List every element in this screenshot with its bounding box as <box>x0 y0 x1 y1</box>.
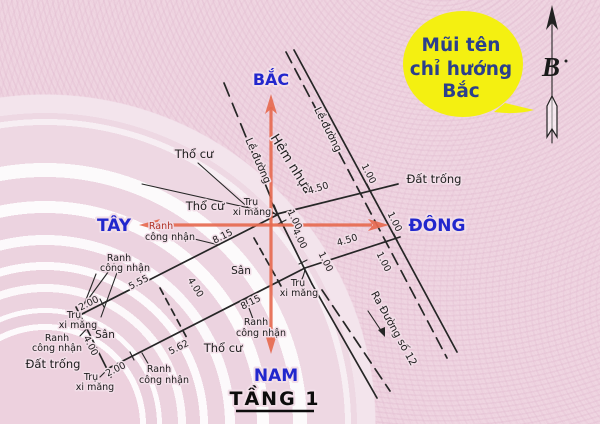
dim-internal-400: 4.00 <box>185 276 206 300</box>
boundary-4-line1: Ranh <box>147 364 171 375</box>
area-label-residential-1: Thổ cư <box>174 147 214 161</box>
area-label-residential-2: Thổ cư <box>185 199 225 213</box>
pillar-west-line2: xi măng <box>59 320 97 331</box>
area-label-yard-2: Sân <box>95 329 115 341</box>
dim-frontage-100-top: 1.00 <box>285 208 304 232</box>
boundary-1-line2: công nhận <box>145 232 195 243</box>
dim-shoulder-100-lower: 1.00 <box>374 250 393 274</box>
north-indicator-letter: B <box>541 52 560 82</box>
pillar-label-ne: Trụ xi măng <box>233 197 271 218</box>
boundary-1-line1: Ranh <box>149 221 173 232</box>
callout-bubble: Mũi tên chỉ hướng Bắc <box>403 11 534 117</box>
area-label-vacant-2: Đất trống <box>407 172 462 186</box>
pillar-ne-line2: xi măng <box>233 207 271 218</box>
callout-text-line-1: Mũi tên <box>422 35 501 56</box>
floor-title-text: TẦNG 1 <box>230 384 321 410</box>
boundary-4-line2: công nhận <box>139 375 189 386</box>
boundary-2-line2: công nhận <box>100 263 150 274</box>
compass-north-label: BẮC <box>253 68 289 89</box>
boundary-label-3: Ranh công nhận <box>32 333 82 354</box>
area-label-residential-3: Thổ cư <box>203 341 243 355</box>
dim-nw-555: 5.55 <box>127 273 151 292</box>
boundary-label-2: Ranh công nhận <box>100 253 150 274</box>
dim-frontage-400: 4.00 <box>290 227 309 251</box>
pillar-sw-line2: xi măng <box>76 382 114 393</box>
compass-south-label: NAM <box>254 366 298 386</box>
dim-se-562: 5.62 <box>167 338 191 357</box>
dim-nw-815: 8.15 <box>211 227 235 246</box>
survey-drawing: B Mũi tên chỉ hướng Bắc BẮC TÂY ĐÔNG NAM… <box>0 0 600 424</box>
callout-text-line-2: chỉ hướng <box>410 59 512 80</box>
pillar-label-west: Trụ xi măng <box>59 310 97 331</box>
map-north-indicator-icon: B <box>541 5 568 143</box>
area-label-yard-1: Sân <box>231 265 251 277</box>
compass-east-label: ĐÔNG <box>409 214 466 236</box>
floor-title: TẦNG 1 <box>230 384 321 411</box>
boundary-3-line2: công nhận <box>32 343 82 354</box>
road-label-exit-street-12: Ra Đường số 12 <box>368 289 419 368</box>
area-label-vacant-1: Đất trống <box>26 357 81 371</box>
callout-text-line-3: Bắc <box>442 81 480 102</box>
pillar-label-se: Trụ xi măng <box>280 278 318 299</box>
boundary-label-5: Ranh công nhận <box>236 317 286 339</box>
dim-alley-450-lower: 4.50 <box>336 232 359 249</box>
dim-se-200: 2.00 <box>104 360 128 379</box>
cadastral-sketch-map: B Mũi tên chỉ hướng Bắc BẮC TÂY ĐÔNG NAM… <box>0 0 600 424</box>
dim-se-815: 8.15 <box>239 293 263 312</box>
compass-west-label: TÂY <box>97 214 132 236</box>
dim-frontage-100-bottom: 1.00 <box>316 250 335 274</box>
boundary-5-line2: công nhận <box>236 328 286 339</box>
boundary-label-4: Ranh công nhận <box>139 364 189 386</box>
boundary-5-line1: Ranh <box>244 317 268 328</box>
road-label-edge-west: Lề đường <box>242 136 273 185</box>
pillar-se-line2: xi măng <box>280 288 318 299</box>
